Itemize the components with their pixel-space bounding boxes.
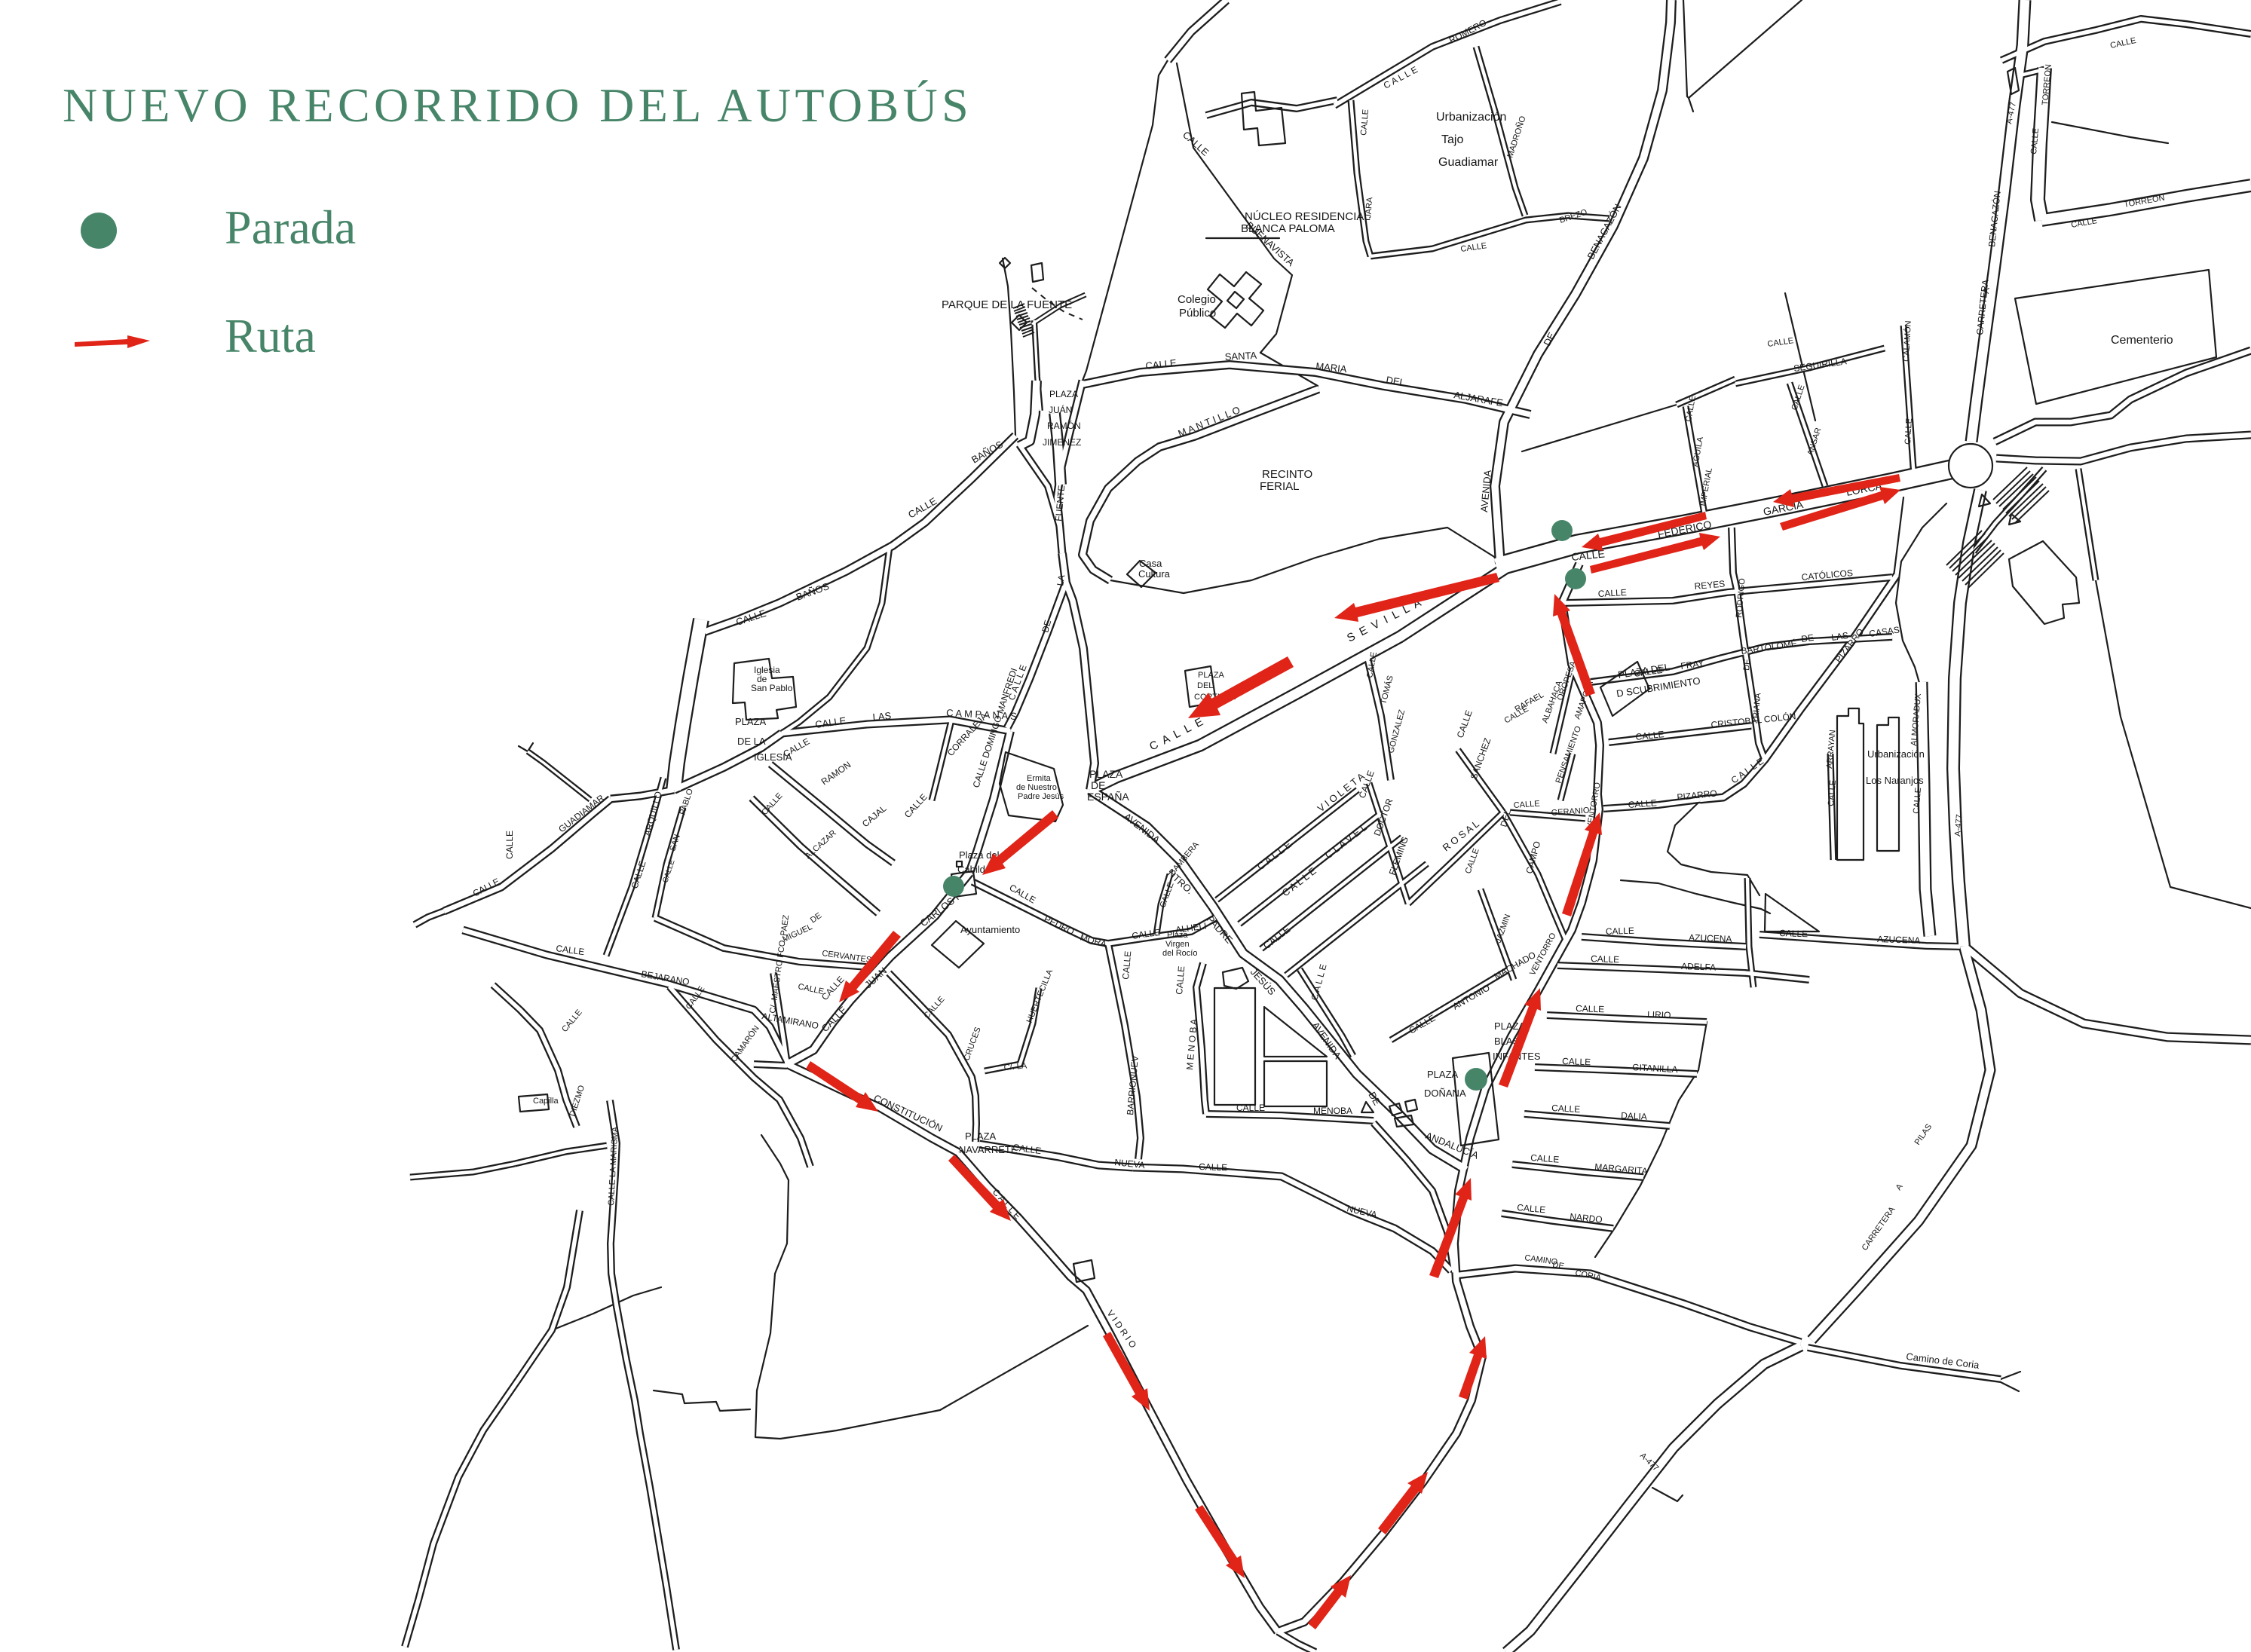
svg-text:Casa: Casa	[1139, 558, 1162, 569]
svg-text:PLAZA: PLAZA	[965, 1130, 997, 1142]
svg-text:Ermita: Ermita	[1027, 774, 1052, 783]
svg-text:CALLE: CALLE	[1562, 1056, 1591, 1067]
svg-text:DALIA: DALIA	[1621, 1110, 1647, 1122]
svg-text:Colegio: Colegio	[1178, 293, 1216, 306]
svg-text:DE: DE	[1742, 659, 1752, 671]
svg-text:DE LA: DE LA	[737, 736, 766, 747]
svg-text:Padre Jesús: Padre Jesús	[1018, 792, 1064, 801]
svg-text:Público: Público	[1179, 307, 1216, 320]
svg-text:PLAZA: PLAZA	[1198, 671, 1225, 680]
svg-text:CALLE: CALLE	[1551, 1103, 1581, 1115]
svg-text:SANTA: SANTA	[1224, 350, 1257, 363]
svg-text:CALLE: CALLE	[504, 831, 515, 859]
svg-text:de Nuestro: de Nuestro	[1016, 783, 1057, 792]
svg-text:CALLE: CALLE	[1597, 587, 1627, 599]
svg-text:NÚCLEO RESIDENCIAL: NÚCLEO RESIDENCIAL	[1245, 210, 1371, 223]
svg-text:DOÑANA: DOÑANA	[1424, 1088, 1466, 1099]
svg-text:AZUCENA: AZUCENA	[1689, 932, 1732, 944]
svg-text:NUEVO RECORRIDO DEL AUTOBÚS: NUEVO RECORRIDO DEL AUTOBÚS	[63, 78, 972, 132]
svg-text:JARA: JARA	[1364, 197, 1374, 219]
svg-text:Los Naranjos: Los Naranjos	[1866, 775, 1924, 786]
svg-text:LA: LA	[1055, 574, 1067, 587]
svg-text:DEL: DEL	[1197, 681, 1213, 690]
svg-text:CALLE: CALLE	[1236, 1103, 1265, 1113]
svg-text:CALLE: CALLE	[1903, 418, 1914, 445]
svg-text:A-477: A-477	[1953, 814, 1965, 837]
svg-text:Ayuntamiento: Ayuntamiento	[960, 924, 1020, 935]
svg-text:Urbanización: Urbanización	[1436, 111, 1506, 124]
svg-text:Ruta: Ruta	[225, 309, 316, 363]
svg-text:Parada: Parada	[225, 200, 356, 254]
svg-text:San Pablo: San Pablo	[751, 683, 793, 693]
svg-text:Cultura: Cultura	[1138, 568, 1171, 580]
svg-text:DE: DE	[1091, 779, 1105, 791]
svg-text:CALLE: CALLE	[1530, 1152, 1560, 1165]
svg-text:Urbanización: Urbanización	[1867, 748, 1925, 760]
svg-text:RAMÓN: RAMÓN	[1047, 420, 1081, 431]
svg-text:AZUCENA: AZUCENA	[1877, 934, 1921, 946]
svg-text:NAVARRETE: NAVARRETE	[959, 1144, 1018, 1155]
svg-text:PLAZA: PLAZA	[1049, 389, 1078, 399]
svg-text:Capilla: Capilla	[533, 1097, 559, 1106]
svg-text:Cementerio: Cementerio	[2111, 334, 2173, 347]
svg-text:del Rocío: del Rocío	[1162, 949, 1197, 958]
svg-text:CALLE: CALLE	[1513, 800, 1540, 810]
svg-text:ADELFA: ADELFA	[1681, 961, 1716, 973]
svg-text:MENOBA: MENOBA	[1313, 1106, 1352, 1116]
svg-text:CALLE: CALLE	[1779, 928, 1808, 939]
svg-text:Tajo: Tajo	[1441, 133, 1463, 146]
svg-text:PLAZA: PLAZA	[1089, 768, 1123, 780]
svg-text:A: A	[1980, 287, 1992, 294]
svg-text:PLAZA: PLAZA	[735, 716, 767, 727]
svg-text:ESPAÑA: ESPAÑA	[1087, 791, 1129, 803]
svg-text:CALLE: CALLE	[1576, 1003, 1604, 1014]
svg-text:CALLE: CALLE	[1628, 797, 1657, 810]
svg-text:RECINTO: RECINTO	[1262, 468, 1312, 481]
svg-text:JIMENEZ: JIMENEZ	[1043, 437, 1081, 448]
svg-text:PLAZA: PLAZA	[1427, 1069, 1459, 1080]
svg-text:JUÁN: JUÁN	[1049, 404, 1072, 415]
svg-text:FERIAL: FERIAL	[1260, 480, 1300, 493]
svg-text:DE: DE	[1800, 632, 1814, 644]
svg-text:CALLE: CALLE	[1591, 953, 1619, 965]
svg-text:CALLE: CALLE	[1199, 1161, 1227, 1173]
svg-text:Guadiamar: Guadiamar	[1438, 156, 1499, 169]
svg-text:PARQUE DE LA FUENTE: PARQUE DE LA FUENTE	[942, 298, 1072, 311]
svg-text:LAS: LAS	[872, 710, 892, 723]
svg-text:Virgen: Virgen	[1165, 940, 1190, 949]
svg-text:LIRIO: LIRIO	[1647, 1009, 1671, 1020]
svg-text:CALLE: CALLE	[1606, 925, 1634, 937]
